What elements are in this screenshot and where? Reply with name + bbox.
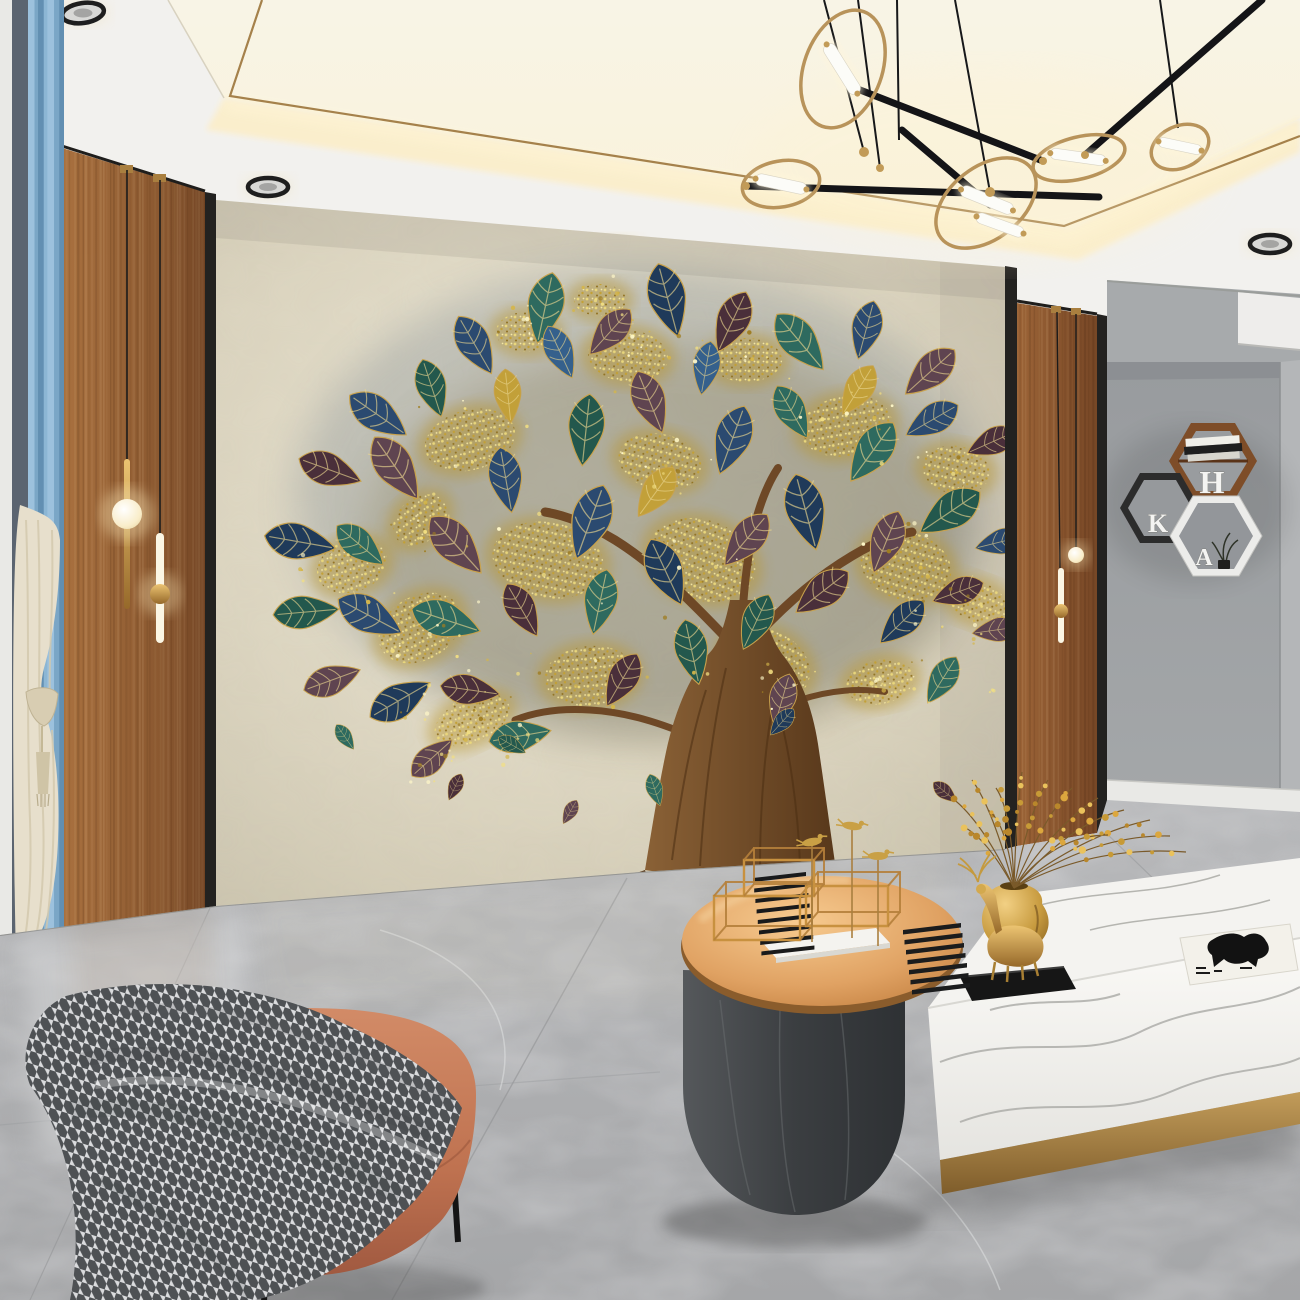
pendant-sphere-light [1068,547,1084,563]
curtains [0,0,65,960]
pendant-ball [1054,604,1068,618]
ceiling-step-block [1238,292,1300,350]
panel-edge-trim [1097,314,1107,833]
plant-pot [1218,560,1230,569]
niche-top-shadow [1107,362,1280,380]
pendant-mount [1051,306,1061,313]
pendant-sphere-light [112,499,142,529]
panel-edge-trim [1005,266,1017,849]
scene-svg: H K A [0,0,1300,1300]
shelf-letter-k: K [1148,509,1169,538]
side-wall [1280,360,1300,790]
panel-edge-trim [205,192,216,910]
deer-head [976,884,986,894]
shelf-letter-h: H [1200,464,1225,500]
pendant-ball [150,584,170,604]
curtain-tassel [36,752,50,794]
pendant-mount [1071,308,1081,315]
window-frame [0,0,14,960]
living-room-photo: H K A [0,0,1300,1300]
downlight [1244,231,1296,257]
shelf-letter-a: A [1195,545,1213,571]
downlight [56,0,110,27]
shelf-books [1183,435,1242,462]
downlight [242,174,294,200]
